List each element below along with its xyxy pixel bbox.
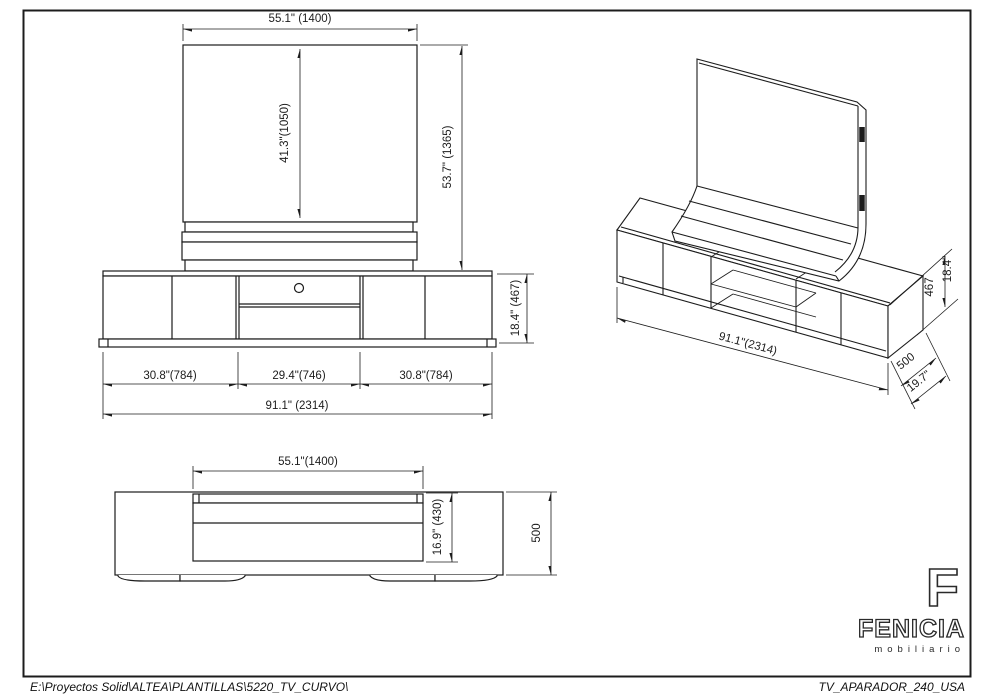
logo-brand-name: FENICIA: [847, 617, 965, 642]
dim-front-left-section: 30.8"(784): [143, 370, 196, 382]
dim-front-panel-width: 55.1" (1400): [269, 13, 332, 25]
dim-iso-depth-in: 19.7": [905, 369, 933, 395]
dim-front-overall-height: 53.7" (1365): [442, 125, 454, 188]
dim-top-overall-depth: 500: [531, 523, 543, 542]
dim-front-panel-height: 41.3"(1050): [279, 103, 291, 163]
logo-tagline: mobiliario: [847, 645, 965, 655]
cad-drawing: 55.1" (1400) 41.3"(1050) 53.7" (1365) 18…: [0, 0, 991, 700]
front-shelf-bands: [182, 222, 417, 271]
dim-iso-depth-mm: 500: [895, 351, 917, 372]
brand-logo: F FENICIA mobiliario: [847, 561, 965, 655]
top-view: 55.1"(1400) 16.9" (430) 500: [115, 456, 557, 581]
logo-f-mark: F: [847, 561, 965, 615]
isometric-view: 91.1"(2314) 500 19.7" 467 18.4": [617, 59, 958, 409]
cable-hole: [295, 284, 304, 293]
dim-front-center-section: 29.4"(746): [272, 370, 325, 382]
top-panel: [193, 494, 423, 561]
dim-iso-height-mm: 467: [924, 277, 936, 296]
dim-front-cabinet-height: 18.4" (467): [510, 280, 522, 337]
drawing-sheet: 55.1" (1400) 41.3"(1050) 53.7" (1365) 18…: [0, 0, 991, 700]
top-door-fronts: [118, 575, 497, 581]
front-cabinet: [99, 271, 496, 347]
dim-top-panel-depth: 16.9" (430): [432, 499, 444, 556]
dim-iso-height-in: 18.4": [942, 256, 954, 282]
iso-tv-panel: [672, 59, 866, 281]
front-view: 55.1" (1400) 41.3"(1050) 53.7" (1365) 18…: [99, 13, 534, 419]
drawing-name: TV_APARADOR_240_USA: [818, 680, 965, 694]
dim-front-overall-width: 91.1" (2314): [266, 400, 329, 412]
dim-iso-overall-width: 91.1"(2314): [717, 331, 778, 358]
front-cabinet-base: [99, 339, 496, 347]
file-path: E:\Proyectos Solid\ALTEA\PLANTILLAS\5220…: [30, 680, 348, 694]
dim-front-right-section: 30.8"(784): [399, 370, 452, 382]
dim-top-panel-width: 55.1"(1400): [278, 456, 338, 468]
